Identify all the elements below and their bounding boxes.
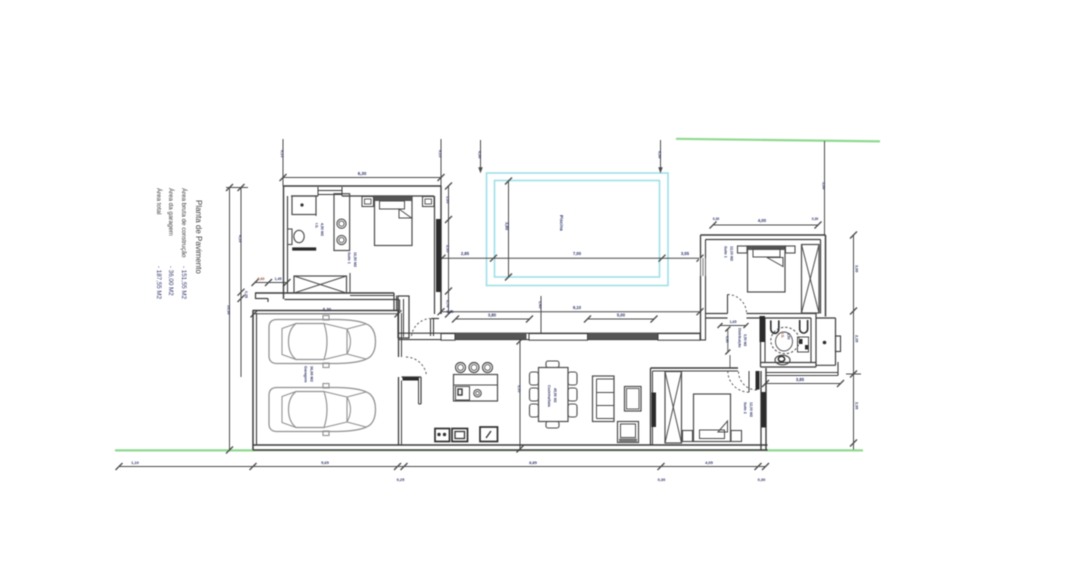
svg-text:12,00 M2: 12,00 M2 <box>749 402 753 417</box>
svg-text:3,50 M2: 3,50 M2 <box>743 334 747 346</box>
svg-text:2,35: 2,35 <box>855 335 859 342</box>
svg-text:12,00 M2: 12,00 M2 <box>729 246 733 261</box>
svg-text:0,30: 0,30 <box>713 217 720 221</box>
svg-text:7,00: 7,00 <box>573 251 582 256</box>
svg-text:0,30: 0,30 <box>478 151 482 158</box>
svg-text:0,30: 0,30 <box>758 477 767 482</box>
svg-text:Cozinha/Sala: Cozinha/Sala <box>547 385 551 407</box>
svg-text:10,30: 10,30 <box>227 305 231 315</box>
svg-text:0,25: 0,25 <box>397 477 406 482</box>
svg-text:I.S.: I.S. <box>781 333 785 338</box>
svg-text:45,50 M2: 45,50 M2 <box>553 388 557 403</box>
svg-text:9,10: 9,10 <box>573 305 582 310</box>
svg-text:6,30: 6,30 <box>358 171 367 176</box>
svg-text:Distribuição: Distribuição <box>737 328 741 348</box>
svg-text:Área bruta de construção- 151: Área bruta de construção- 151,55 M2 <box>180 188 187 300</box>
svg-text:2,95: 2,95 <box>855 402 859 409</box>
svg-text:4,00: 4,00 <box>758 218 767 223</box>
svg-text:0,25: 0,25 <box>244 291 248 298</box>
svg-text:3,00: 3,00 <box>855 265 859 272</box>
svg-text:8,85: 8,85 <box>529 460 538 465</box>
svg-text:4,50 M2: 4,50 M2 <box>320 223 324 236</box>
svg-text:Planta de Pavimento: Planta de Pavimento <box>194 200 203 274</box>
svg-text:3,80: 3,80 <box>488 313 497 318</box>
svg-text:Piscina: Piscina <box>559 215 564 231</box>
svg-text:0,30: 0,30 <box>658 151 662 158</box>
svg-text:3,55: 3,55 <box>681 251 690 256</box>
svg-text:0,30: 0,30 <box>658 477 667 482</box>
svg-text:1,45: 1,45 <box>275 277 282 281</box>
svg-text:1,10: 1,10 <box>131 460 140 465</box>
svg-text:2,85: 2,85 <box>461 251 470 256</box>
svg-text:0,15: 0,15 <box>280 150 284 157</box>
svg-text:2,35: 2,35 <box>446 245 450 252</box>
svg-text:5,65: 5,65 <box>321 460 330 465</box>
svg-text:Suíte 1: Suíte 1 <box>724 246 728 258</box>
svg-text:0,60: 0,60 <box>258 277 265 281</box>
svg-text:0,90: 0,90 <box>725 336 729 343</box>
svg-text:36,00 M2: 36,00 M2 <box>310 366 314 382</box>
svg-text:0,70: 0,70 <box>446 300 450 307</box>
svg-text:Suíte 2: Suíte 2 <box>743 402 747 414</box>
svg-text:3,50: 3,50 <box>786 333 790 340</box>
svg-text:3,85: 3,85 <box>796 377 805 382</box>
svg-text:5,00: 5,00 <box>617 313 626 318</box>
svg-text:0,30: 0,30 <box>447 310 454 314</box>
svg-text:0,30: 0,30 <box>812 217 819 221</box>
svg-text:0,15: 0,15 <box>438 150 442 157</box>
svg-text:1,45: 1,45 <box>538 301 542 308</box>
svg-text:16,50 M2: 16,50 M2 <box>353 252 357 267</box>
svg-text:4,10: 4,10 <box>238 235 242 242</box>
svg-text:3,55: 3,55 <box>517 385 521 392</box>
svg-text:1,05: 1,05 <box>446 196 450 203</box>
svg-text:4,05: 4,05 <box>705 460 714 465</box>
svg-text:5,00: 5,00 <box>822 182 826 189</box>
svg-text:Suíte 1: Suíte 1 <box>347 252 351 264</box>
svg-text:1,65: 1,65 <box>730 320 737 324</box>
svg-text:3,80: 3,80 <box>505 222 510 231</box>
svg-text:I.S.: I.S. <box>315 223 319 228</box>
svg-text:Garagem: Garagem <box>304 366 308 383</box>
